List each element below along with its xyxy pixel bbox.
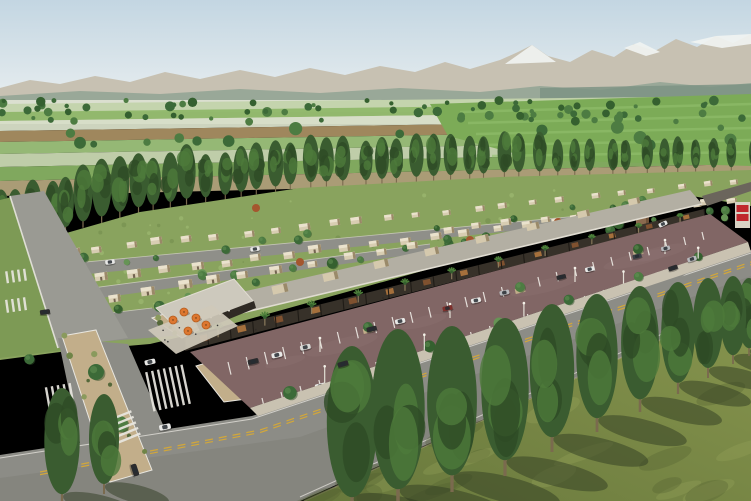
autumn-accent-tree [252,204,260,212]
distant-tree [709,96,719,106]
lawn-texture [179,216,183,220]
lawn-texture [509,193,514,198]
distant-tree [581,110,590,119]
lawn-texture [149,224,151,226]
field-tree [289,122,302,135]
distant-tree [558,105,564,111]
distant-tree [673,119,678,124]
street-lamp-head [622,270,625,273]
distant-tree [124,98,129,103]
patio-guest [164,339,166,341]
lawn-texture [147,231,151,235]
distant-tree [82,103,90,111]
distant-tree [591,117,597,123]
distant-tree [65,109,72,116]
distant-tree [574,102,581,109]
distant-tree [263,109,268,114]
distant-tree [527,99,532,104]
street-lamp-head [423,333,426,336]
distant-tree [188,98,197,107]
distant-tree [315,105,321,111]
street-lamp-head [523,302,526,305]
distant-tree [422,104,427,109]
lawn-texture [170,239,174,243]
distant-tree [178,114,184,120]
aerial-rendering-image [0,0,751,501]
lawn-texture [251,217,253,219]
distant-tree [457,115,465,123]
distant-tree [70,117,78,125]
distant-tree [64,104,68,108]
autumn-accent-tree [296,258,304,266]
red-retail-sign [737,205,749,212]
field-tree [143,138,150,145]
distant-tree [570,110,577,117]
light-pole-head [319,337,322,340]
distant-tree [471,107,475,111]
distant-tree [530,109,534,113]
distant-tree [495,96,504,105]
desert-shrub [91,351,97,357]
desert-shrub [61,333,67,339]
distant-tree [312,103,316,107]
distant-tree [635,115,642,122]
field-tree [223,135,235,147]
distant-tree [142,114,148,120]
lawn-texture [116,279,120,283]
field-tree [718,124,725,131]
lawn-texture [561,208,564,211]
distant-tree [652,97,660,105]
distant-tree [31,116,35,120]
lawn-texture [138,299,143,304]
lawn-texture [242,261,244,263]
light-pole-head [574,267,577,270]
distant-tree [389,101,393,105]
desert-shrub [81,394,86,399]
patio-guest [195,333,197,335]
distant-tree [2,99,6,103]
distant-tree [414,108,423,117]
sign-glyph [228,310,230,311]
field-tree [192,136,201,145]
distant-tree [433,107,442,116]
distant-tree [304,103,312,111]
patio-guest [179,327,181,329]
distant-tree [179,101,186,108]
field-tree [90,141,97,148]
distant-tree [319,118,324,123]
distant-tree [34,105,40,111]
distant-tree [485,111,494,120]
desert-shrub [155,315,161,321]
lawn-texture [242,236,245,239]
distant-tree [478,101,487,110]
street-lamp-head [323,365,326,368]
field-tree [174,133,184,143]
desert-shrub [142,449,147,454]
patio-guest [167,341,169,343]
desert-shrub [108,383,112,387]
lawn-texture [553,189,556,192]
lawn-texture [157,224,160,227]
distant-tree [634,104,638,108]
pedestrian [352,305,354,307]
patio-guest [162,329,164,331]
light-pole-head [664,239,667,242]
lawn-texture [290,200,292,202]
lawn-texture [167,292,170,295]
lawn-texture [98,231,102,235]
distant-tree [571,117,580,126]
distant-tree [281,109,288,116]
lawn-texture [186,226,189,229]
distant-tree [512,105,520,113]
field-tree [611,121,624,134]
light-pole-head [449,303,452,306]
distant-tree [738,114,746,122]
pedestrian [243,332,245,334]
distant-tree [557,112,563,118]
crosswalk [145,364,191,411]
pedestrian [255,329,257,331]
distant-tree [125,111,132,118]
distant-tree [44,108,53,117]
distant-tree [699,110,707,118]
pedestrian [451,280,453,282]
distant-tree [209,116,213,120]
street-lamp-head [697,247,700,250]
pedestrian [382,297,384,299]
rendering-canvas [0,0,751,501]
distant-tree [602,110,610,118]
lawn-texture [122,222,127,227]
distant-tree [48,117,54,123]
red-retail-sign [737,214,749,221]
field-tree [74,137,86,149]
distant-tree [250,99,257,106]
desert-shrub [66,352,73,359]
distant-tree [703,102,707,106]
distant-tree [365,98,370,103]
field-tree [395,129,404,138]
distant-tree [516,112,524,120]
pedestrian [280,323,282,325]
distant-tree [390,107,397,114]
distant-tree [445,100,450,105]
distant-tree [245,118,253,126]
distant-tree [171,113,177,119]
distant-tree [244,109,250,115]
distant-tree [172,103,177,108]
distant-tree [608,102,615,109]
distant-tree [616,111,622,117]
distant-tree [23,106,31,114]
desert-shrub [86,379,89,382]
patio-guest [217,325,219,327]
field-tree [66,129,75,138]
car [143,358,156,367]
distant-tree [51,98,56,103]
lawn-texture [422,193,426,197]
distant-tree [528,117,534,123]
distant-tree [36,97,45,106]
lawn-texture [485,218,490,223]
